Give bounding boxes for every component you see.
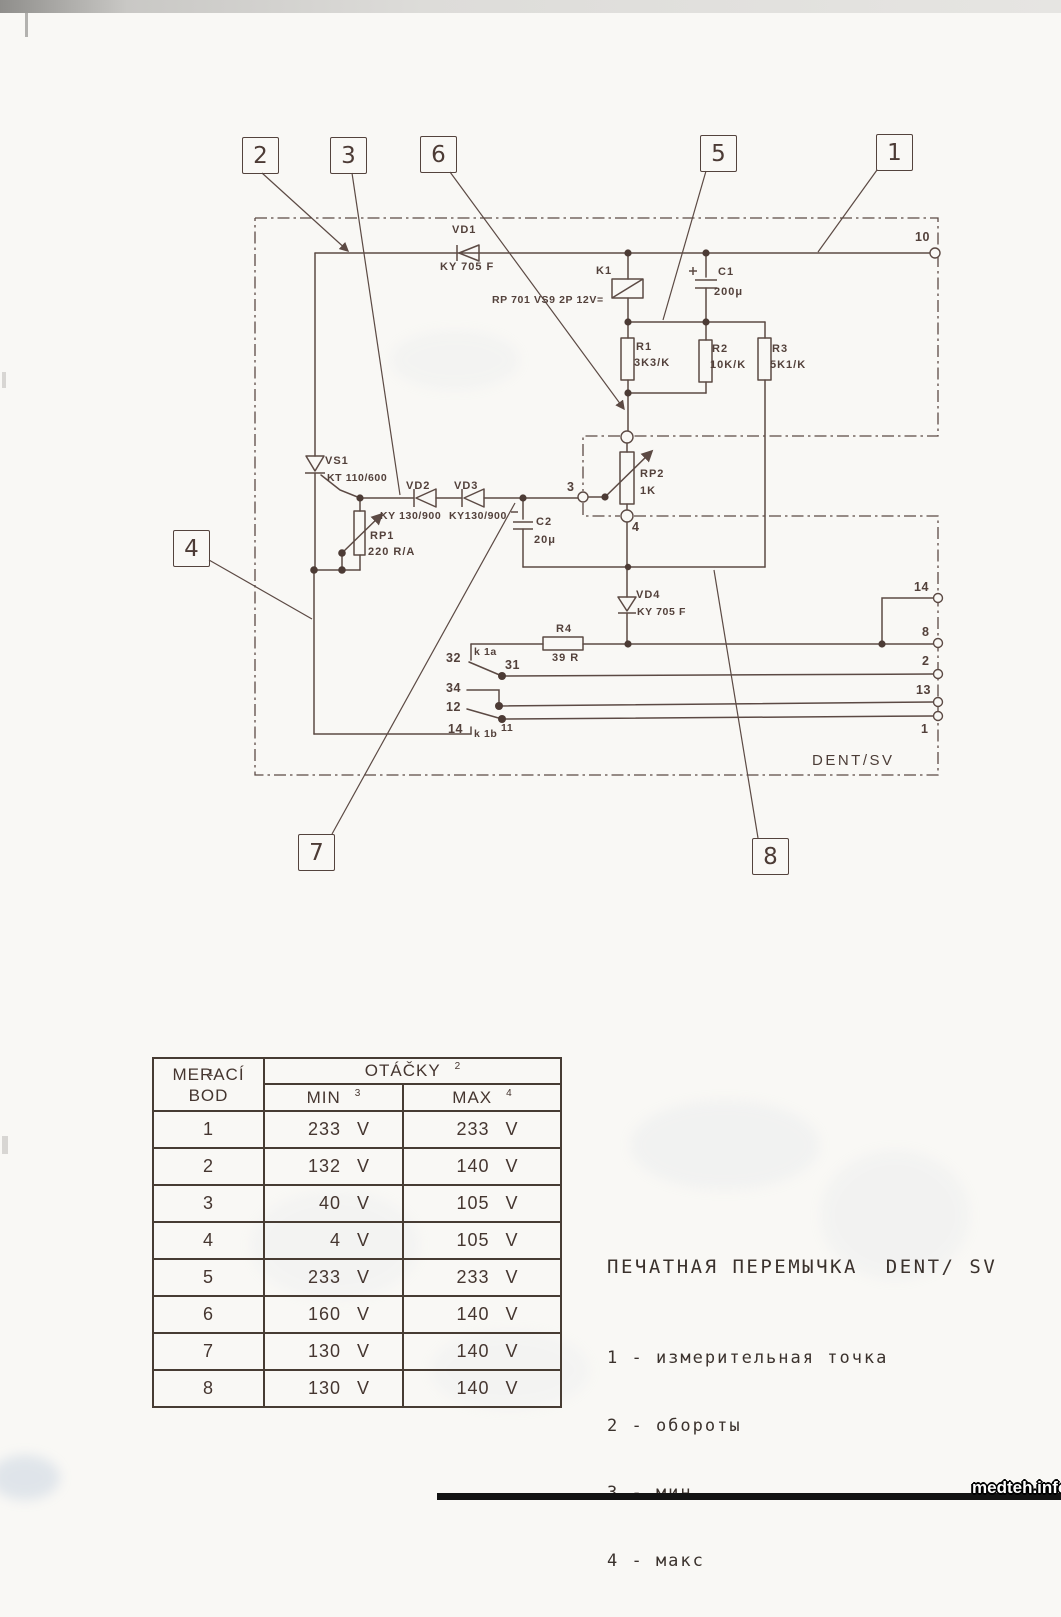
max-value: 233 [445,1267,489,1288]
max-value: 233 [445,1119,489,1140]
min-value: 130 [297,1341,341,1362]
callout-leader-lines [209,170,877,838]
diode-vd4 [618,597,636,613]
cell-max: 105V [403,1185,561,1222]
thyristor-vs1 [305,456,325,473]
wires [313,253,933,734]
label-terminal-10: 10 [915,230,930,244]
label-vd2-type: KY 130/900 [380,510,441,522]
table-header-min-text: MIN [307,1088,341,1107]
label-contact-34: 34 [446,681,461,695]
cell-bod: 7 [153,1333,264,1370]
legend-item: 2 - обороты [607,1415,888,1438]
cell-max: 233V [403,1259,561,1296]
min-value: 130 [297,1378,341,1399]
unit: V [505,1304,518,1325]
scan-artifact [0,1455,60,1500]
label-vd1: VD1 [452,224,476,236]
table-header-otacky: OTÁČKY2 [264,1058,561,1084]
min-value: 4 [297,1230,341,1251]
label-contact-14: 14 [448,722,463,736]
label-r1: R1 [636,341,652,353]
table-header-min: MIN3 [264,1084,403,1111]
label-r2-value: 10K/K [710,359,746,371]
cell-bod: 3 [153,1185,264,1222]
callout-box-7: 7 [298,834,335,871]
table-row: 7 130V 140V [153,1333,561,1370]
unit: V [357,1119,370,1140]
cell-min: 130V [264,1370,403,1407]
label-rp1: RP1 [370,530,394,542]
label-vd2: VD2 [406,480,430,492]
cell-min: 132V [264,1148,403,1185]
label-terminal-14: 14 [914,580,929,594]
label-contact-k1a: k 1a [474,646,497,658]
label-r4: R4 [556,623,572,635]
callout-number: 4 [184,536,199,562]
resistor-r4 [543,637,583,650]
callout-box-3: 3 [330,137,367,174]
legend-item: 4 - макс [607,1550,888,1573]
min-value: 40 [297,1193,341,1214]
cell-max: 140V [403,1333,561,1370]
table-header-max-text: MAX [452,1088,492,1107]
relay-coil-k1 [612,279,643,298]
label-contact-k1b: k 1b [474,728,497,740]
label-contact-32: 32 [446,651,461,665]
label-vd4-type: KY 705 F [637,606,686,618]
cell-bod: 1 [153,1111,264,1148]
label-r3: R3 [772,343,788,355]
callout-box-4: 4 [173,530,210,567]
label-k1: K1 [596,265,612,277]
cell-bod: 8 [153,1370,264,1407]
callout-box-2: 2 [242,137,279,174]
max-value: 140 [445,1341,489,1362]
cell-min: 160V [264,1296,403,1333]
table-row: 4 4V 105V [153,1222,561,1259]
unit: V [357,1378,370,1399]
label-block-name: DENT/SV [812,752,895,769]
label-r4-value: 39 R [552,652,579,664]
unit: V [357,1230,370,1251]
label-contact-11: 11 [501,722,513,734]
unit: V [505,1119,518,1140]
callout-number: 7 [309,840,324,866]
callout-number: 5 [711,141,726,167]
table-sup-4: 4 [506,1088,512,1099]
max-value: 140 [445,1378,489,1399]
table-header-otacky-text: OTÁČKY [365,1061,441,1080]
label-vd1-type: KY 705 F [440,261,494,273]
cell-min: 233V [264,1259,403,1296]
unit: V [357,1304,370,1325]
label-r2: R2 [712,343,728,355]
legend-items: 1 - измерительная точка 2 - обороты 3 - … [607,1302,888,1617]
label-terminal-3: 3 [567,480,574,494]
max-value: 105 [445,1230,489,1251]
callout-number: 8 [763,844,778,870]
watermark: medteh.info [972,1478,1061,1498]
label-vd3-type: KY130/900 [449,510,507,522]
cell-min: 4V [264,1222,403,1259]
legend-title: ПЕЧАТНАЯ ПЕРЕМЫЧКА DENT/ SV [607,1256,997,1278]
callout-box-5: 5 [700,135,737,172]
label-r3-value: 5K1/K [770,359,806,371]
min-value: 233 [297,1119,341,1140]
scan-artifact [437,1493,1061,1500]
max-value: 105 [445,1193,489,1214]
measurement-table: 1 MERACÍ BOD OTÁČKY2 MIN3 MAX4 1 233V 23… [152,1057,562,1408]
unit: V [357,1156,370,1177]
label-contact-31: 31 [505,658,520,672]
cell-min: 130V [264,1333,403,1370]
label-rp1-value: 220 R/A [368,546,415,558]
cell-max: 140V [403,1370,561,1407]
capacitor-c2 [511,512,533,529]
table-sup-3: 3 [355,1088,361,1099]
label-terminal-13: 13 [916,683,931,697]
unit: V [505,1378,518,1399]
callout-box-1: 1 [876,134,913,171]
unit: V [505,1267,518,1288]
table-header-line2: BOD [189,1086,229,1105]
unit: V [357,1193,370,1214]
unit: V [505,1156,518,1177]
label-terminal-8: 8 [922,625,929,639]
cell-bod: 5 [153,1259,264,1296]
cell-max: 140V [403,1296,561,1333]
table-row: 8 130V 140V [153,1370,561,1407]
table-sup-2: 2 [455,1061,461,1072]
label-c1-value: 200μ [714,286,743,298]
label-c2: C2 [536,516,552,528]
table-header-meraci-bod: 1 MERACÍ BOD [153,1058,264,1111]
unit: V [357,1341,370,1362]
cell-max: 233V [403,1111,561,1148]
callout-number: 3 [341,143,356,169]
label-terminal-2: 2 [922,654,929,668]
label-terminal-1: 1 [921,722,928,736]
resistor-r1 [621,338,634,380]
table-row: 5 233V 233V [153,1259,561,1296]
scan-artifact [630,1100,820,1190]
label-vs1: VS1 [325,455,349,467]
label-contact-12: 12 [446,700,461,714]
max-value: 140 [445,1304,489,1325]
unit: V [505,1230,518,1251]
cell-bod: 6 [153,1296,264,1333]
table-row: 3 40V 105V [153,1185,561,1222]
unit: V [357,1267,370,1288]
cell-bod: 2 [153,1148,264,1185]
cell-bod: 4 [153,1222,264,1259]
cell-max: 105V [403,1222,561,1259]
legend-item: 1 - измерительная точка [607,1347,888,1370]
terminal-circles [578,248,943,721]
table-row: 2 132V 140V [153,1148,561,1185]
label-c2-value: 20μ [534,534,556,546]
label-r1-value: 3K3/K [634,357,670,369]
label-vd4: VD4 [636,589,660,601]
scanned-schematic-page: 1 2 3 4 5 6 7 8 VD1 KY 705 F K1 RP 701 V… [0,0,1061,1500]
min-value: 233 [297,1267,341,1288]
label-vs1-type: KT 110/600 [327,472,387,484]
capacitor-c1 [689,267,717,288]
callout-number: 6 [431,142,446,168]
table-row: 1 233V 233V [153,1111,561,1148]
label-vd3: VD3 [454,480,478,492]
cell-min: 40V [264,1185,403,1222]
max-value: 140 [445,1156,489,1177]
min-value: 160 [297,1304,341,1325]
label-rp2: RP2 [640,468,664,480]
min-value: 132 [297,1156,341,1177]
callout-number: 1 [887,140,902,166]
scan-artifact [2,1136,8,1154]
label-terminal-4: 4 [632,520,639,534]
callout-box-8: 8 [752,838,789,875]
unit: V [505,1341,518,1362]
cell-max: 140V [403,1148,561,1185]
table-sup-1: 1 [208,1063,215,1084]
junction-dots [310,249,885,723]
callout-box-6: 6 [420,136,457,173]
callout-number: 2 [253,143,268,169]
cell-min: 233V [264,1111,403,1148]
unit: V [505,1193,518,1214]
label-c1: C1 [718,266,734,278]
table-header-max: MAX4 [403,1084,561,1111]
label-rp2-value: 1K [640,485,656,497]
table-row: 6 160V 140V [153,1296,561,1333]
label-k1-type: RP 701 VS9 2P 12V= [492,294,604,306]
